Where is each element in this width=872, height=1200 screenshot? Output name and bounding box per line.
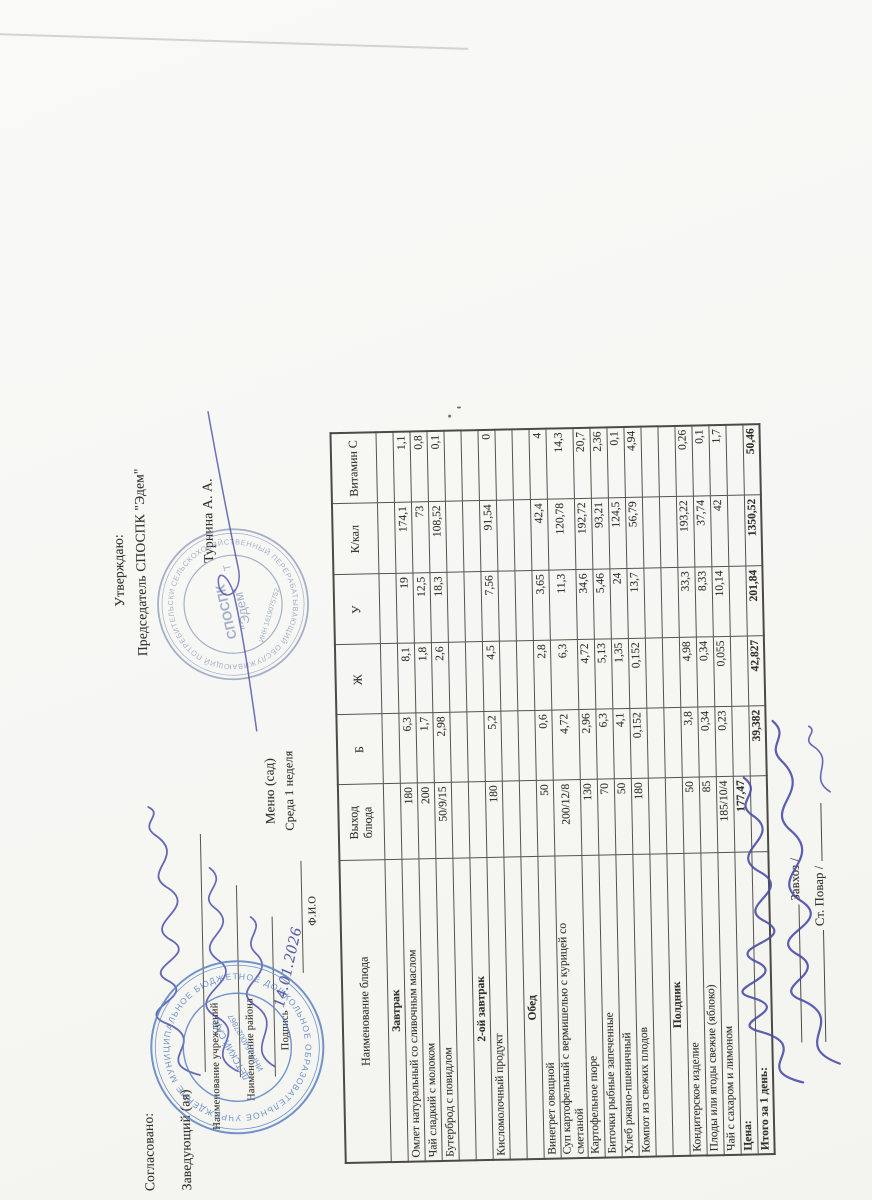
value-cell: 13,7 <box>627 569 645 639</box>
value-cell: 33,3 <box>678 568 696 638</box>
menu-subtitle: Среда 1 неделя <box>280 718 298 863</box>
value-cell <box>726 425 744 496</box>
menu-title: Меню (сад) <box>260 718 279 863</box>
value-cell <box>642 497 660 568</box>
value-cell: 108,52 <box>428 502 446 573</box>
value-cell <box>447 572 465 642</box>
value-cell: 12,5 <box>413 573 431 643</box>
value-cell: 4 <box>529 429 547 500</box>
value-cell: 4,1 <box>613 709 631 779</box>
value-cell <box>648 778 667 854</box>
value-cell <box>376 432 394 503</box>
value-cell <box>512 429 530 500</box>
value-cell <box>727 496 745 567</box>
value-cell: 50 <box>682 778 701 854</box>
value-cell: 5,2 <box>484 712 502 782</box>
value-cell <box>462 501 480 572</box>
value-cell: 0,6 <box>535 711 553 781</box>
svg-text:МУНИЦИПАЛЬНОЕ БЮДЖЕТНОЕ ДОШКОЛ: МУНИЦИПАЛЬНОЕ БЮДЖЕТНОЕ ДОШКОЛЬНОЕ ОБРАЗ… <box>145 955 329 1139</box>
value-cell: 42,827 <box>747 636 765 706</box>
value-cell: 0,34 <box>696 637 714 707</box>
value-cell <box>450 712 468 782</box>
value-cell: 50 <box>536 781 555 857</box>
ink-dot <box>457 406 461 408</box>
value-cell: 14,3 <box>546 428 574 500</box>
value-cell <box>513 500 531 571</box>
value-cell: 3,8 <box>681 708 699 778</box>
column-header: Ж <box>335 644 382 715</box>
value-cell: 2,6 <box>431 643 449 713</box>
value-cell: 73 <box>411 502 429 573</box>
value-cell: 0 <box>478 430 496 501</box>
value-cell <box>382 714 400 784</box>
value-cell: 180 <box>485 782 504 858</box>
value-cell: 70 <box>597 779 616 855</box>
value-cell: 6,3 <box>399 713 417 783</box>
value-cell <box>448 642 466 712</box>
value-cell: 10,14 <box>712 567 730 637</box>
value-cell: 50/9/15 <box>434 783 453 859</box>
value-cell: 0,152 <box>630 709 648 779</box>
value-cell: 1,35 <box>611 639 629 709</box>
value-cell: 91,54 <box>479 501 497 572</box>
value-cell: 4,72 <box>577 640 595 710</box>
value-cell: 34,6 <box>576 570 594 640</box>
value-cell: 2,36 <box>590 427 608 498</box>
value-cell <box>729 567 747 637</box>
value-cell <box>645 638 663 708</box>
value-cell <box>383 784 402 860</box>
value-cell: 56,79 <box>625 498 643 569</box>
value-cell <box>665 778 684 854</box>
value-cell <box>644 568 662 638</box>
value-cell: 6,3 <box>596 709 614 779</box>
value-cell: 19 <box>396 573 414 643</box>
column-header: Наименование блюда <box>339 860 391 1163</box>
value-cell: 1,1 <box>393 432 411 503</box>
value-cell: 1,7 <box>709 425 727 496</box>
value-cell: 130 <box>580 780 599 856</box>
value-cell: 7,56 <box>481 572 499 642</box>
value-cell: 1,7 <box>416 713 434 783</box>
value-cell: 3,65 <box>532 571 550 641</box>
value-cell <box>495 429 513 500</box>
value-cell <box>498 571 516 641</box>
left-stamp-ring-text: МУНИЦИПАЛЬНОЕ БЮДЖЕТНОЕ ДОШКОЛЬНОЕ ОБРАЗ… <box>145 955 329 1139</box>
value-cell: 4,94 <box>624 427 642 498</box>
column-header: Выход блюда <box>338 784 385 861</box>
value-cell <box>659 497 677 568</box>
value-cell: 6,3 <box>550 640 578 711</box>
menu-title-block: Меню (сад) Среда 1 неделя <box>260 718 298 864</box>
value-cell: 20,7 <box>573 428 591 499</box>
ink-dot <box>448 415 451 418</box>
value-cell: 18,3 <box>430 573 448 643</box>
value-cell: 5,13 <box>594 639 612 709</box>
value-cell <box>515 571 533 641</box>
value-cell: 120,78 <box>547 499 575 571</box>
value-cell: 0,26 <box>675 426 693 497</box>
value-cell: 1350,52 <box>744 495 762 566</box>
value-cell <box>496 500 514 571</box>
handwritten-footer-signatures <box>700 701 858 1094</box>
value-cell <box>730 636 748 706</box>
value-cell: 1,8 <box>414 643 432 713</box>
value-cell: 5,46 <box>593 569 611 639</box>
value-cell: 50 <box>614 779 633 855</box>
value-cell: 0,1 <box>607 427 625 498</box>
column-header: К/кал <box>332 503 379 575</box>
value-cell <box>464 572 482 642</box>
value-cell <box>516 641 534 711</box>
handwritten-chairman-signature <box>194 406 271 737</box>
value-cell <box>658 426 676 497</box>
value-cell: 42 <box>710 496 728 567</box>
value-cell <box>647 708 665 778</box>
value-cell: 193,22 <box>676 497 694 568</box>
chairman-label: Председатель СПОСПК "Эдем" <box>130 396 151 656</box>
value-cell: 8,33 <box>695 567 713 637</box>
value-cell: 192,72 <box>574 499 592 570</box>
column-header: Витамин С <box>330 432 377 504</box>
value-cell: 4,98 <box>679 638 697 708</box>
value-cell <box>467 712 485 782</box>
column-header: Б <box>336 714 383 785</box>
value-cell <box>499 641 517 711</box>
value-cell <box>461 430 479 501</box>
value-cell <box>661 568 679 638</box>
value-cell <box>518 711 536 781</box>
value-cell: 174,1 <box>394 502 412 573</box>
value-cell <box>445 501 463 572</box>
value-cell <box>379 574 397 644</box>
value-cell: 200/12/8 <box>553 780 581 857</box>
value-cell <box>502 781 521 857</box>
round-stamp-left: МУНИЦИПАЛЬНОЕ БЮДЖЕТНОЕ ДОШКОЛЬНОЕ ОБРАЗ… <box>145 955 329 1139</box>
value-cell: 50,46 <box>743 424 761 495</box>
value-cell: 42,4 <box>530 500 548 571</box>
value-cell: 2,8 <box>533 641 551 711</box>
column-header: У <box>333 574 380 645</box>
value-cell: 2,96 <box>579 710 597 780</box>
value-cell: 11,3 <box>549 570 577 641</box>
value-cell: 93,21 <box>591 498 609 569</box>
value-cell <box>468 782 487 858</box>
scanned-menu-page: Согласовано: Заведующий (ая) Наименовани… <box>0 0 872 1200</box>
value-cell: 0,1 <box>692 425 710 496</box>
scan-edge-line <box>0 33 468 50</box>
value-cell: 4,72 <box>552 710 580 781</box>
value-cell: 4,5 <box>482 642 500 712</box>
value-cell: 0,055 <box>713 637 731 707</box>
value-cell: 24 <box>610 569 628 639</box>
value-cell: 180 <box>400 783 419 859</box>
value-cell: 2,98 <box>433 713 451 783</box>
value-cell: 200 <box>417 783 436 859</box>
value-cell: 124,5 <box>608 498 626 569</box>
value-cell <box>380 644 398 714</box>
approved-label: Утверждаю: <box>108 396 128 606</box>
value-cell: 37,74 <box>693 496 711 567</box>
scanned-menu-document: Согласовано: Заведующий (ая) Наименовани… <box>0 0 872 1200</box>
value-cell <box>501 711 519 781</box>
value-cell <box>451 782 470 858</box>
value-cell <box>377 503 395 574</box>
value-cell: 201,84 <box>746 566 764 636</box>
value-cell <box>519 781 538 857</box>
value-cell <box>641 426 659 497</box>
value-cell: 0,152 <box>628 639 646 709</box>
value-cell <box>465 642 483 712</box>
value-cell: 8,1 <box>397 643 415 713</box>
value-cell <box>664 708 682 778</box>
value-cell: 0,1 <box>427 431 445 502</box>
value-cell: 0,8 <box>410 431 428 502</box>
value-cell <box>662 638 680 708</box>
value-cell: 180 <box>631 779 650 855</box>
value-cell <box>444 430 462 501</box>
